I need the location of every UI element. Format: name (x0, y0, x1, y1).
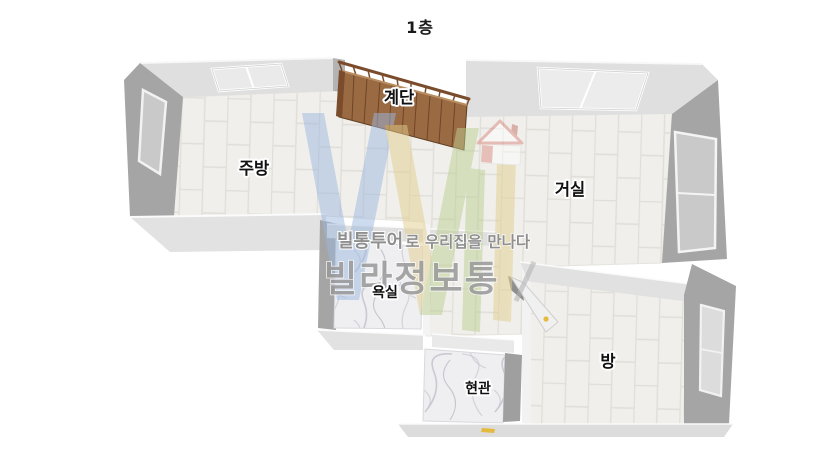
bedroom-label: 방 (600, 352, 615, 371)
living-right-window-icon (675, 132, 716, 252)
watermark-brand: 빌라정보통 (324, 259, 500, 300)
entrance-label: 현관 (465, 380, 491, 397)
door-handle-icon (543, 316, 548, 321)
floor-plan-drawing: 빌통투어로 우리집을 만나다 빌라정보통 계단 주방 거실 욕실 현관 방 (0, 0, 840, 472)
kitchen-bottom-wall (130, 214, 326, 252)
kitchen-label: 주방 (239, 159, 269, 178)
living-room-label: 거실 (555, 180, 585, 199)
bedroom-right-window-icon (700, 305, 724, 396)
entrance-marble-floor (423, 349, 505, 423)
living-ceiling-window-icon (538, 68, 648, 110)
kitchen-left-window-icon (139, 90, 166, 174)
kitchen-ceiling-window-icon (212, 64, 288, 91)
bathroom-label: 욕실 (372, 285, 398, 301)
floor-plan-page: 1층 (0, 0, 840, 472)
entrance-right-wall (503, 353, 522, 422)
watermark-slogan: 빌통투어로 우리집을 만나다 (337, 231, 531, 252)
bottom-wall (398, 424, 733, 437)
stairs-label: 계단 (384, 88, 414, 107)
